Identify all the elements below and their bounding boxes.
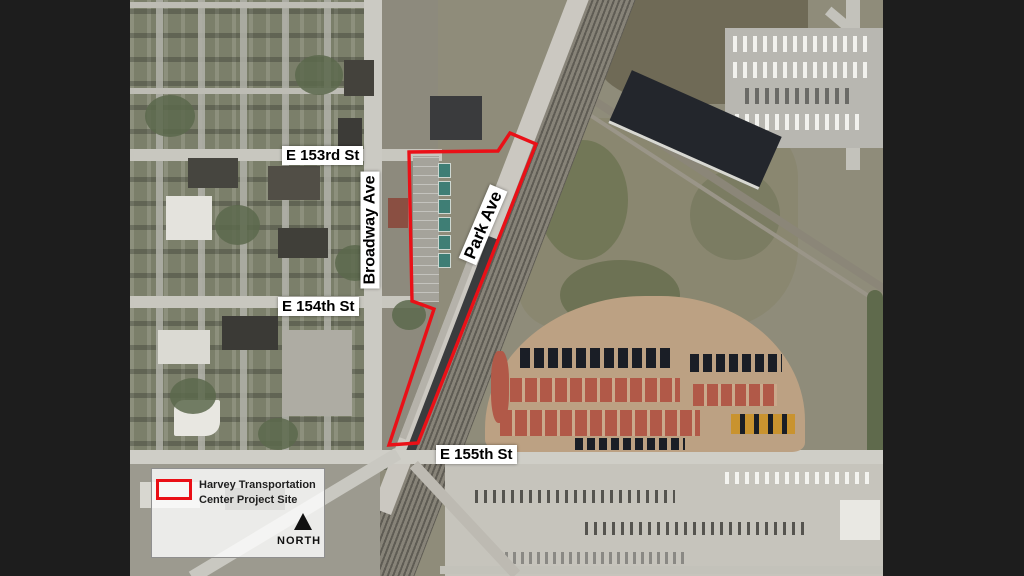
street-label-broadway: Broadway Ave [361, 171, 380, 288]
trailer-row [745, 88, 855, 104]
building-roof [840, 500, 880, 540]
street-label-e154th: E 154th St [278, 297, 359, 316]
trailer-row [733, 36, 873, 52]
street-minor-vertical [156, 0, 163, 470]
building-roof [188, 158, 238, 188]
container-row-red [491, 351, 509, 423]
video-frame: E 153rd St Broadway Ave Park Ave E 154th… [0, 0, 1024, 576]
building-roof [222, 316, 278, 350]
building-roof [158, 330, 210, 364]
trailer-row [733, 62, 873, 78]
tree-canopy [392, 300, 426, 330]
container-row-red [510, 378, 680, 402]
tree-canopy [170, 378, 216, 414]
trailer-row [585, 522, 805, 535]
tree-canopy [145, 95, 195, 137]
building-roof [268, 166, 320, 200]
trailer-row [725, 472, 875, 484]
trailer-row [505, 552, 685, 564]
map-legend: Harvey Transportation Center Project Sit… [151, 468, 325, 558]
bus-shelter-canopy [438, 199, 451, 214]
letterbox-left [0, 0, 130, 576]
building-roof [338, 118, 362, 148]
trailer-row [475, 490, 675, 503]
vegetation-patch [867, 290, 883, 460]
bus-shelter-canopy [438, 253, 451, 268]
street-label-e155th: E 155th St [436, 445, 517, 464]
bus-shelter-canopy [438, 163, 451, 178]
north-arrow-icon [294, 513, 312, 530]
legend-text-line1: Harvey Transportation [199, 478, 316, 493]
bus-shelter-canopy [438, 181, 451, 196]
bus-shelter-canopy [438, 235, 451, 250]
tree-canopy [215, 205, 260, 245]
aerial-map: E 153rd St Broadway Ave Park Ave E 154th… [130, 0, 883, 576]
container-row-yellow [731, 414, 795, 434]
building-roof [278, 228, 328, 258]
parking-lot [282, 330, 352, 416]
container-row-red [500, 410, 700, 436]
tree-canopy [258, 418, 298, 450]
north-label: NORTH [277, 535, 321, 547]
building-roof [430, 96, 482, 140]
building-roof [388, 198, 408, 228]
street-label-e153rd: E 153rd St [282, 146, 363, 165]
letterbox-right [883, 0, 1024, 576]
container-row-red [693, 384, 777, 406]
container-row-dark [575, 438, 685, 450]
south-truck-yards [445, 464, 883, 576]
building-roof [166, 196, 212, 240]
tree-canopy [295, 55, 343, 95]
site-outline-swatch [156, 479, 192, 500]
container-row-dark [520, 348, 670, 368]
bus-shelter-canopy [438, 217, 451, 232]
legend-text-line2: Center Project Site [199, 493, 297, 508]
site-parking-lot [413, 156, 439, 302]
container-row-dark [690, 354, 782, 372]
building-roof [344, 60, 374, 96]
